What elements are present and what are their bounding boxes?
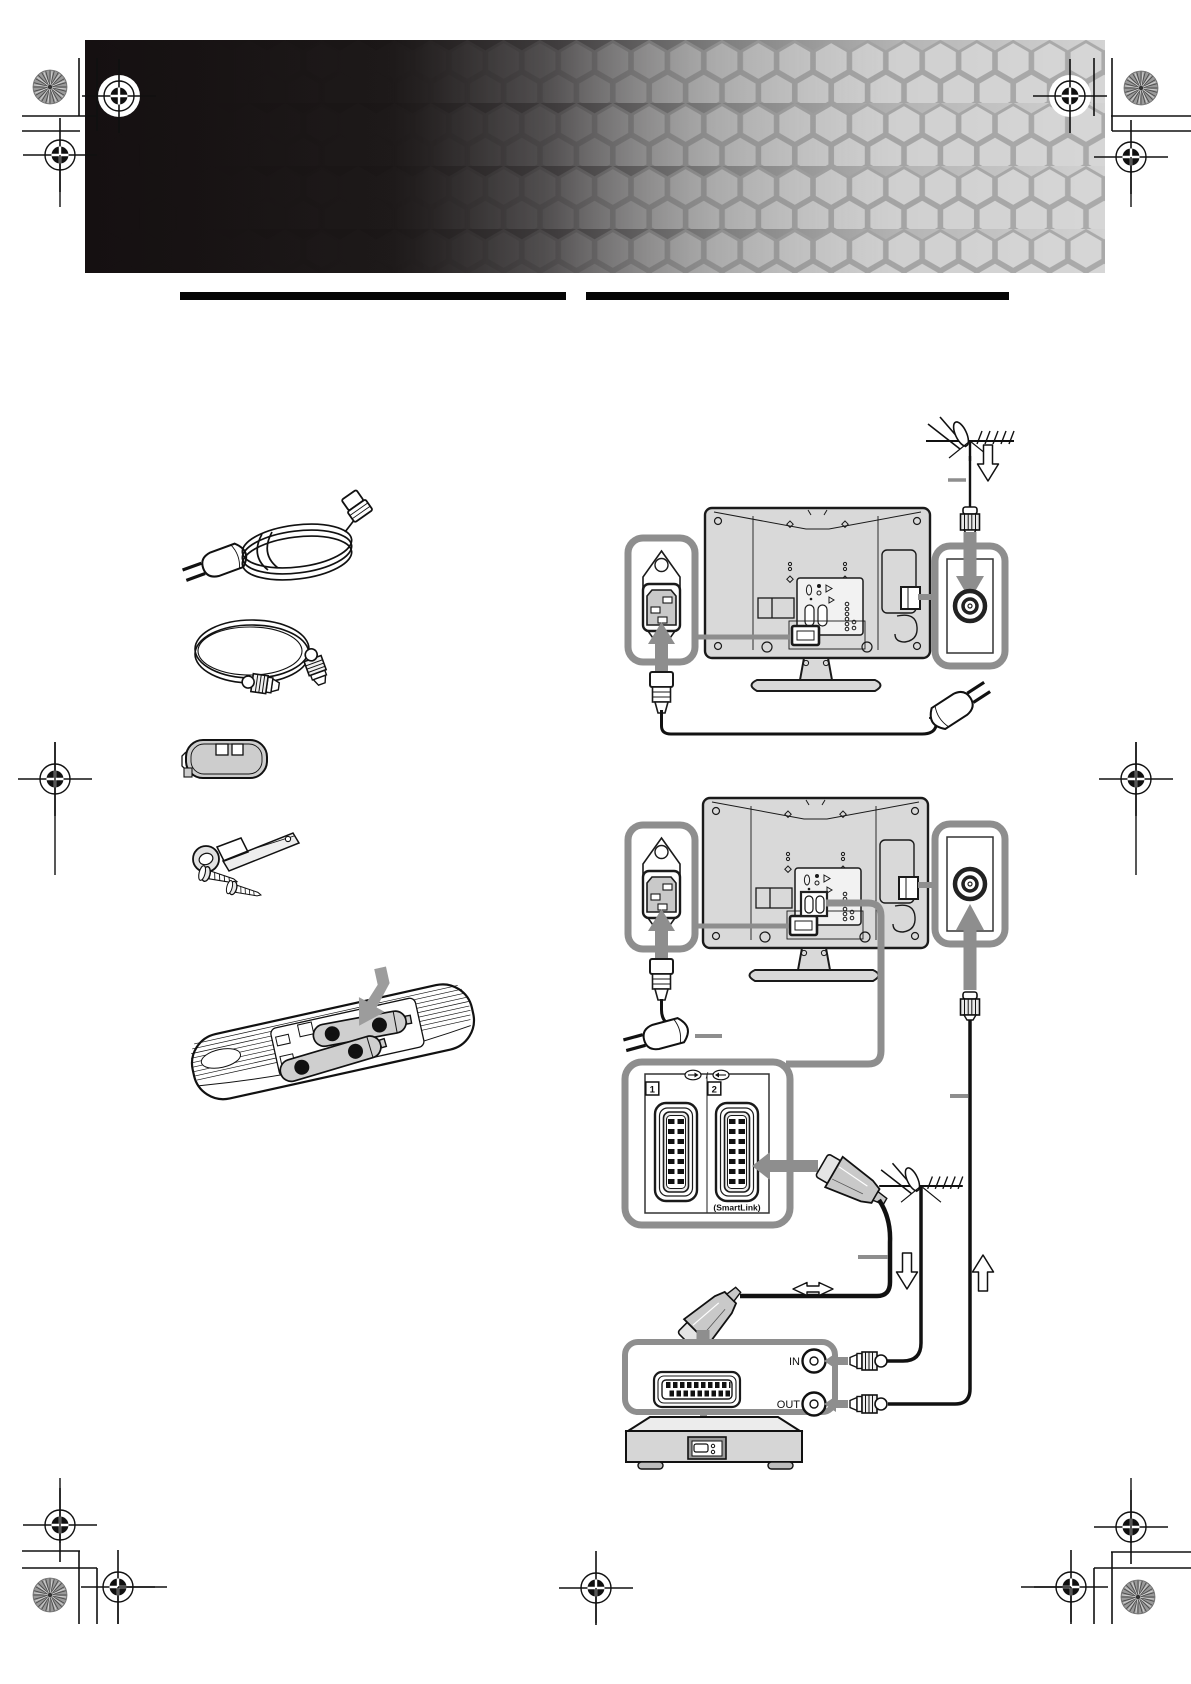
- color-wheel-icon: [33, 1578, 67, 1612]
- aerial-antenna-icon: [879, 1163, 963, 1205]
- tv-rear-icon: [703, 798, 928, 981]
- smartlink-label: (SmartLink): [713, 1203, 760, 1213]
- mains-socket-icon: [628, 825, 695, 1000]
- aerial-socket-icon: [955, 869, 985, 899]
- manual-page: − + + −: [0, 0, 1191, 1684]
- mains-lead-cable: [662, 710, 939, 734]
- aerial-socket-icon: [955, 591, 985, 621]
- cable-holder-icon: [182, 740, 267, 778]
- section-bar-right: [586, 292, 1009, 300]
- up-arrow-icon: [973, 1255, 994, 1291]
- coax-plug-icon: [850, 1352, 887, 1370]
- header-banner: [85, 40, 1105, 273]
- mains-plug-icon: [926, 676, 994, 732]
- mains-lead-icon: [180, 489, 373, 587]
- vcr-icon: [626, 1417, 802, 1469]
- vcr-in-label: IN: [789, 1356, 800, 1368]
- tv-rear-icon: [705, 508, 930, 691]
- aerial-antenna-icon: [926, 417, 1014, 461]
- down-arrow-icon: [897, 1253, 918, 1289]
- remote-with-batteries-icon: − + + −: [180, 950, 480, 1105]
- aerial-cable: [888, 1020, 970, 1404]
- mains-socket-icon: [628, 538, 695, 713]
- scart2-label: 2: [712, 1085, 717, 1096]
- scart-socket-icon: [716, 1103, 758, 1201]
- signal-direction-icon: [793, 1283, 833, 1296]
- page-canvas: − + + −: [0, 0, 1191, 1684]
- scart-io-icons: /: [685, 1070, 729, 1080]
- color-wheel-icon: [33, 70, 67, 104]
- scart1-label: 1: [650, 1085, 656, 1096]
- accessories-column: − + + −: [180, 489, 480, 1105]
- honeycomb-pattern: [85, 40, 1105, 273]
- support-belt-screws-icon: [193, 833, 299, 902]
- coax-plug-icon: [850, 1395, 887, 1413]
- down-arrow-icon: [978, 445, 999, 481]
- coax-plug-icon: [961, 507, 980, 535]
- section-bar-left: [180, 292, 566, 300]
- vcr-out-label: OUT: [777, 1399, 801, 1411]
- color-wheel-icon: [1121, 1580, 1155, 1614]
- color-wheel-icon: [1124, 71, 1158, 105]
- scart-panel-callout: / 1 2 (SmartLink): [625, 1062, 818, 1225]
- scart-socket-icon: [655, 1103, 697, 1201]
- coax-plug-icon: [961, 992, 980, 1020]
- mains-plug-icon: [622, 1016, 691, 1057]
- screw-icon: [225, 880, 262, 902]
- coaxial-cable-icon: [195, 620, 330, 695]
- diagram-aerial-connection: [628, 417, 1014, 734]
- vcr-scart-socket-icon: [654, 1372, 740, 1407]
